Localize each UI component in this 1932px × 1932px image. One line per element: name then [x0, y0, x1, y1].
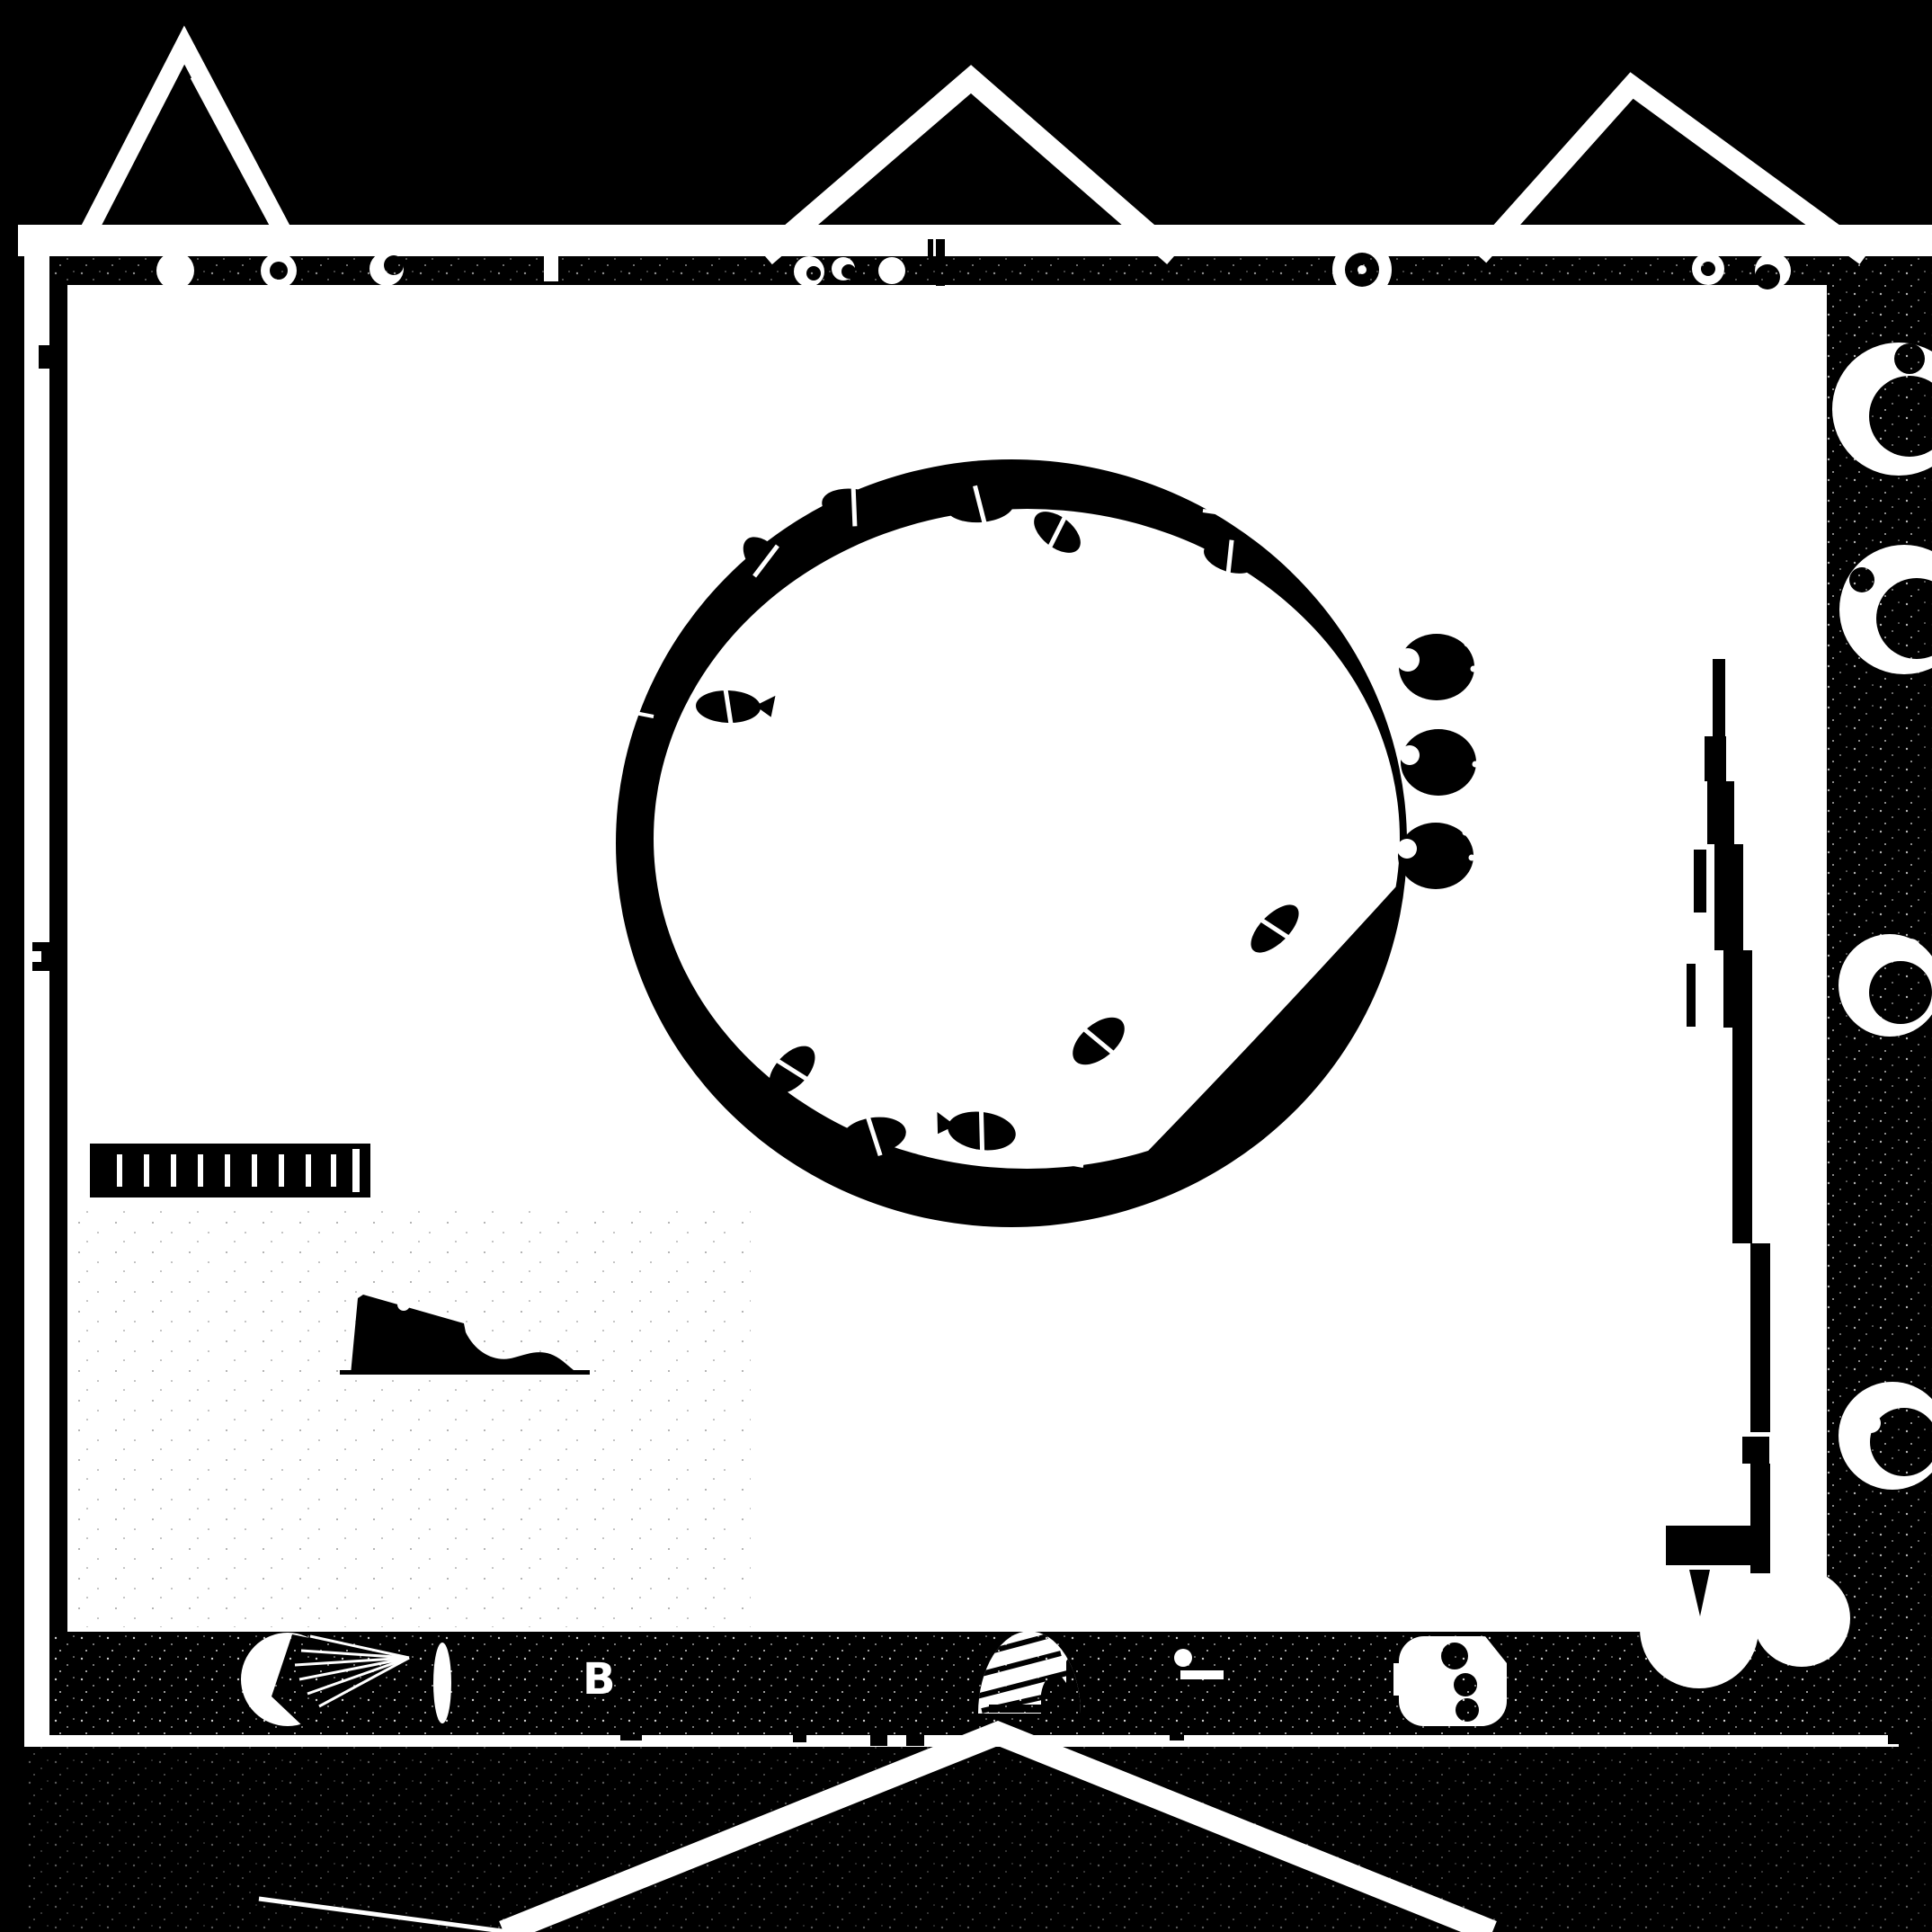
- stepping-stone-discs: [1396, 634, 1479, 889]
- ramp-notch: [397, 1298, 410, 1311]
- corner-ring-hole: [1701, 262, 1715, 276]
- corner-crescent-bite: [1755, 264, 1780, 289]
- frame-left-band: [24, 225, 49, 1746]
- lantern-arm: [1180, 1670, 1224, 1679]
- wall-latch: [39, 345, 49, 369]
- stone-disc-ornament: [156, 252, 194, 289]
- lantern-foot: [1170, 1732, 1184, 1741]
- curl-ornament-b-hole: [841, 264, 856, 279]
- white-post-ornament: [544, 253, 558, 281]
- wall-bracket-bar: [41, 942, 50, 971]
- corner-stone: [1753, 1570, 1850, 1667]
- notched-dome: [1640, 1570, 1758, 1688]
- lantern-head: [1174, 1649, 1192, 1667]
- shrine-dot-1: [1441, 1643, 1468, 1669]
- gate-bench: [989, 1705, 1043, 1713]
- shrine-dot-3: [1456, 1698, 1479, 1722]
- right-margin-wall: [1827, 256, 1932, 1932]
- shrine-dot-2: [1454, 1673, 1477, 1696]
- garden-plan: B: [0, 0, 1932, 1932]
- dotted-shrine: [1393, 1636, 1507, 1726]
- frame-top-band: [18, 225, 1932, 256]
- wall-tab-right: [1888, 1735, 1913, 1744]
- plan-canvas: B: [0, 0, 1932, 1932]
- trunk-post-a: [793, 1724, 806, 1742]
- letter-b: B: [583, 1654, 616, 1705]
- large-ring-pip: [1358, 265, 1367, 274]
- trunk-post-b: [870, 1724, 887, 1746]
- gate-tick-small: [928, 239, 933, 266]
- shrine-ledge: [1393, 1663, 1411, 1696]
- fan-post: [433, 1643, 451, 1723]
- gate-tick-large: [936, 239, 945, 286]
- ring-ornament-hole: [270, 262, 288, 280]
- step-side-bar-upper: [1694, 850, 1706, 913]
- ramp-baseline: [340, 1370, 590, 1375]
- wall-tab-left: [620, 1733, 642, 1741]
- step-side-bar-lower: [1687, 964, 1696, 1027]
- curl-ornament-a-hole: [806, 266, 821, 280]
- left-wall: [49, 256, 67, 1634]
- step-joint-line: [1741, 1432, 1771, 1437]
- stone-dot-ornament: [878, 257, 905, 284]
- trunk-post-c: [906, 1724, 924, 1746]
- plank-bridge: [90, 1144, 370, 1197]
- bridge-end-gap: [352, 1149, 360, 1192]
- crescent-ornament-bite: [384, 255, 404, 275]
- step-landing-block: [1666, 1526, 1763, 1565]
